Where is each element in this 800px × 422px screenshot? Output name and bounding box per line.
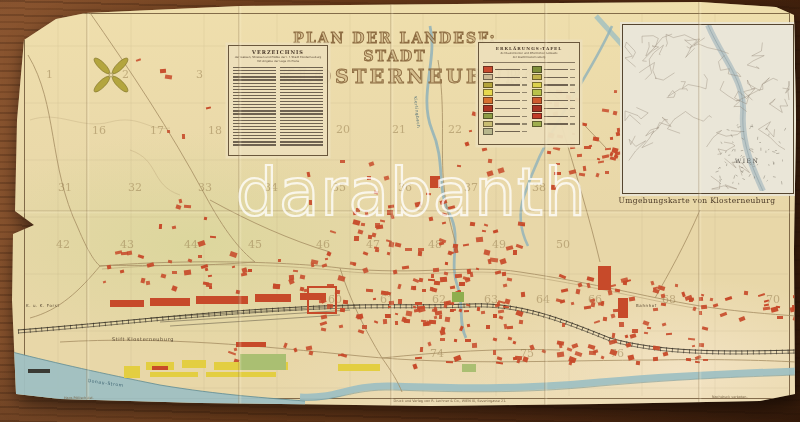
map-paper-shadow-wrap: 1231617182021223132333435363738424344454… [0,0,800,422]
legend-plan-number [522,131,527,132]
legend-row [532,97,576,105]
legend-table [483,62,575,135]
inset-caption: Umgebungskarte von Klosterneuburg [602,196,792,205]
inset-contour-line [629,136,646,161]
street-index-column-right [280,67,323,147]
legend-label-text [544,123,569,124]
legend-color-swatch [532,66,542,73]
legend-label-text [495,108,520,109]
inset-contour-line [625,42,636,67]
inset-city-hatch [731,134,733,137]
inset-contour-line [639,63,674,81]
legend-row [532,73,576,81]
color-legend-box: ERKLÄRUNGS-TAFEL der Baulichkeiten und ö… [478,42,580,145]
inset-city-hatch [776,153,779,154]
surroundings-inset-map: WIEN [622,24,794,194]
inset-city-hatch [749,174,751,177]
map-paper-sheet: 1231617182021223132333435363738424344454… [0,0,800,422]
inset-city-hatch [767,180,768,181]
map-label: Donau-Strom [87,378,124,388]
legend-label-text [495,131,520,132]
map-label: K. u. K. Forst [26,303,60,308]
inset-contour-line [643,34,673,61]
legend-plan-number [522,108,527,109]
legend-plan-number [522,100,527,101]
legend-plan-number [522,116,527,117]
legend-color-swatch [483,128,493,135]
inset-contour-line [666,34,697,48]
inset-contour-line [642,127,659,147]
publisher-imprint: Druck und Verlag von R. Lechner & Co., W… [300,399,600,403]
legend-color-swatch [483,121,493,128]
legend-color-swatch [532,97,542,104]
inset-city-hatch [764,175,765,178]
inset-city-hatch [732,142,733,143]
map-label: Bahnhof [636,303,657,308]
legend-row [532,112,576,120]
legend-subtitle1: der Baulichkeiten und öffentlichen Gebäu… [483,52,575,55]
legend-color-swatch [483,105,493,112]
legend-color-swatch [483,89,493,96]
inset-contour-line [681,74,708,89]
inset-city-hatch [728,155,730,156]
legend-row [483,65,527,73]
legend-label-text [495,69,520,70]
inset-city-hatch [716,171,719,172]
legend-label-text [544,116,569,117]
legend-color-swatch [483,113,493,120]
inset-contour-line [667,89,688,98]
legend-label-text [495,77,520,78]
copyright-note: Nachdruck verboten. [712,395,748,399]
legend-label-text [495,100,520,101]
legend-plan-number [522,77,527,78]
legend-color-swatch [532,121,542,128]
legend-color-swatch [532,105,542,112]
legend-row [532,89,576,97]
legend-label-text [495,123,520,124]
street-index-column-left [233,67,276,147]
legend-plan-number [570,108,575,109]
legend-plan-number [522,84,527,85]
inset-city-hatch [736,175,738,176]
legend-row [532,81,576,89]
inset-city-hatch [749,127,750,129]
map-label: Kierlingbach [413,96,421,128]
inset-contour-line [667,112,711,134]
inset-city-hatch [742,178,745,179]
legend-color-swatch [532,82,542,89]
legend-subtitle2: der Stadt Klosterneuburg [483,56,575,59]
legend-label-text [495,84,520,85]
legend-label-text [544,69,569,70]
map-label: Stift Klosterneuburg [112,336,174,342]
auction-photo-of-antique-map: 1231617182021223132333435363738424344454… [0,0,800,422]
inset-city-hatch [750,149,753,150]
inset-city-hatch [725,162,726,163]
inset-city-hatch [784,128,785,131]
inset-city-hatch [781,181,782,184]
inset-city-hatch [772,152,775,153]
street-index-box: VERZEICHNIS der Gassen, Strassen und Plä… [228,45,328,156]
legend-row [532,120,576,128]
legend-plan-number [570,69,575,70]
legend-heading: ERKLÄRUNGS-TAFEL [483,46,575,51]
legend-plan-number [570,100,575,101]
legend-row [483,112,527,120]
inset-city-hatch [734,175,735,178]
inset-contour-line [625,108,648,125]
legend-label-text [495,92,520,93]
inset-city-hatch [733,182,734,184]
legend-plan-number [522,69,527,70]
inset-city-hatch [727,129,730,130]
legend-column-left [483,65,527,135]
legend-color-swatch [532,113,542,120]
legend-plan-number [522,92,527,93]
legend-color-swatch [483,66,493,73]
inset-city-hatch [720,179,722,180]
inset-contour-line [707,130,742,147]
inset-city-hatch [752,151,753,153]
inset-city-hatch [773,177,776,178]
street-index-columns [233,67,323,147]
legend-row [483,73,527,81]
legend-color-swatch [532,89,542,96]
legend-label-text [544,77,569,78]
inset-contour-line [718,142,736,154]
legend-plan-number [570,116,575,117]
legend-label-text [544,84,569,85]
inset-city-hatch [750,126,753,127]
inset-city-hatch [757,164,758,165]
legend-plan-number [570,84,575,85]
legend-row [483,120,527,128]
inset-topo-canvas [623,25,791,191]
legend-color-swatch [532,74,542,81]
inset-city-hatch [721,142,722,144]
inset-city-label: WIEN [735,157,759,164]
legend-row [532,104,576,112]
legend-color-swatch [483,97,493,104]
legend-row [483,89,527,97]
street-index-subtitle2: mit Angabe der Lage im Plane [233,60,323,63]
legend-color-swatch [483,74,493,81]
legend-label-text [544,108,569,109]
legend-row [483,128,527,136]
inset-contour-line [769,99,787,113]
inset-city-hatch [766,128,767,130]
inset-contour-line [747,43,764,69]
legend-row [483,104,527,112]
legend-plan-number [570,92,575,93]
legend-plan-number [570,77,575,78]
inset-city-hatch [779,141,780,143]
inset-city-hatch [720,176,721,179]
legend-plan-number [570,123,575,124]
legend-plan-number [522,123,527,124]
legend-label-text [544,100,569,101]
legend-column-right [532,65,576,135]
legend-row [483,97,527,105]
legend-color-swatch [483,82,493,89]
inset-contour-line [783,81,790,100]
inset-city-hatch [737,124,739,125]
inset-city-hatch [768,149,769,150]
inset-city-hatch [732,149,734,152]
legend-label-text [544,92,569,93]
legend-row [532,65,576,73]
legend-row [483,81,527,89]
inset-contour-line [758,122,785,150]
draughtsman-credit: Hans Pöllisch del. [64,396,94,400]
legend-label-text [495,116,520,117]
